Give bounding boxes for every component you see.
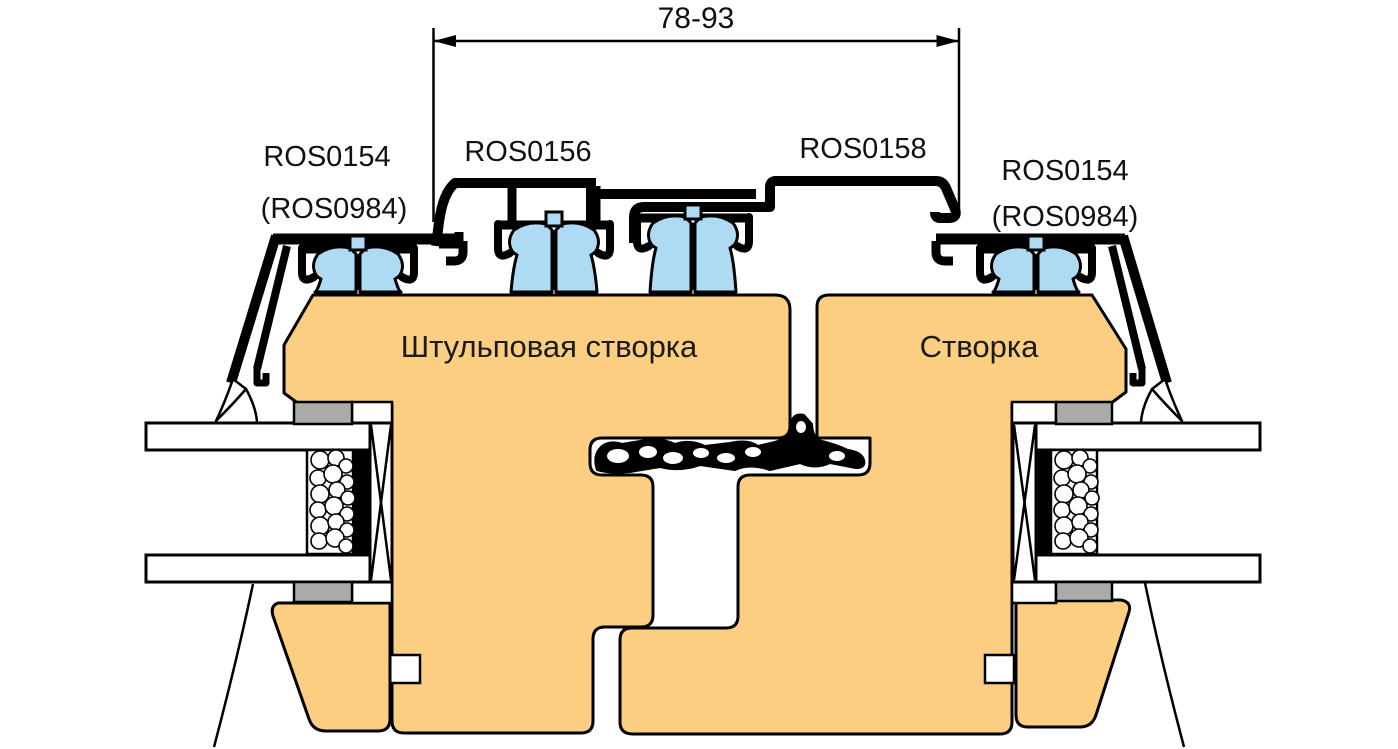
gasket-void xyxy=(829,451,845,461)
gasket-void xyxy=(796,421,806,433)
desiccant-bead xyxy=(311,533,327,549)
label-ros0984-right: (ROS0984) xyxy=(992,201,1139,233)
screw-clip xyxy=(498,186,610,292)
left-glazing-unit xyxy=(146,402,392,603)
desiccant-bead xyxy=(339,539,353,553)
left-rebate-bottom xyxy=(352,582,392,603)
clip-body-right xyxy=(360,247,403,292)
right-rebate-bottom xyxy=(1012,582,1056,603)
screw-clip xyxy=(637,205,749,292)
right-glass-pane-inner xyxy=(1036,555,1260,582)
label-ros0156: ROS0156 xyxy=(464,136,591,168)
right-cap-drip-tail xyxy=(1152,379,1182,421)
left-desiccant-fill xyxy=(310,450,355,553)
gasket-void xyxy=(639,446,657,458)
clip-body-right xyxy=(1038,247,1081,292)
left-glazing-gasket-bottom xyxy=(294,582,352,602)
gasket-void xyxy=(607,449,629,463)
left-rebate-top xyxy=(352,402,392,424)
clip-t-head xyxy=(546,212,562,226)
gasket-void xyxy=(663,452,683,464)
desiccant-bead xyxy=(1055,533,1071,549)
label-ros0154-right: ROS0154 xyxy=(1001,155,1128,187)
left-glazing-bead xyxy=(272,603,390,731)
right-bottom-drip-line xyxy=(1145,583,1184,747)
desiccant-bead xyxy=(1083,539,1097,553)
clip-t-head xyxy=(685,205,701,219)
left-sash-label: Штульповая створка xyxy=(401,329,698,364)
right-rebate-top xyxy=(1012,402,1056,424)
sashes: Штульповая створка Створка xyxy=(284,295,1126,734)
gasket-void xyxy=(745,447,761,457)
clip-body-right xyxy=(556,223,599,292)
desiccant-bead xyxy=(310,502,326,518)
gasket-void xyxy=(717,453,735,463)
right-glazing-gasket-bottom xyxy=(1056,582,1112,601)
window-section-diagram: 78-93 Штульповая створка Створка xyxy=(0,0,1398,749)
left-edge-sealant xyxy=(352,450,371,555)
desiccant-bead xyxy=(324,465,342,483)
desiccant-bead xyxy=(1055,451,1073,469)
clip-body-left xyxy=(510,223,553,292)
label-ros0984-left: (ROS0984) xyxy=(261,193,408,225)
left-glazing-gasket-top xyxy=(294,402,352,424)
desiccant-bead xyxy=(1068,465,1086,483)
right-cap-drip-edge xyxy=(1141,389,1152,422)
right-cap-bottom-hook xyxy=(1133,367,1142,383)
clip-t-head xyxy=(350,236,366,250)
left-glass-pane-outer xyxy=(146,423,370,450)
desiccant-bead xyxy=(311,451,329,469)
gasket-void xyxy=(693,448,709,458)
dimension-value: 78-93 xyxy=(658,2,735,35)
desiccant-bead xyxy=(1054,502,1070,518)
right-sash-groove xyxy=(985,655,1014,683)
section-drawing: 78-93 Штульповая створка Створка xyxy=(0,0,1398,749)
right-desiccant-fill xyxy=(1054,450,1099,553)
clip-body-left xyxy=(314,247,357,292)
right-glazing-gasket-top xyxy=(1056,402,1112,424)
left-glass-pane-inner xyxy=(146,555,370,582)
right-sash-label: Створка xyxy=(920,329,1039,364)
left-cap-bottom-hook xyxy=(257,367,266,383)
left-sash-groove xyxy=(390,655,420,683)
clip-body-right xyxy=(695,216,738,292)
clip-body-left xyxy=(992,247,1035,292)
clip-body-left xyxy=(649,216,692,292)
right-glazing-unit xyxy=(1012,402,1260,603)
label-ros0158: ROS0158 xyxy=(799,133,926,165)
label-ros0154-left: ROS0154 xyxy=(263,141,390,173)
left-cap-drip-tail xyxy=(216,379,246,421)
arrowhead-right-icon xyxy=(937,35,960,47)
left-cap-drip-edge xyxy=(246,389,257,422)
arrowhead-left-icon xyxy=(434,35,457,47)
right-glazing-bead xyxy=(1016,600,1130,727)
clip-t-head xyxy=(1028,236,1044,250)
left-bottom-drip-line xyxy=(214,584,253,747)
right-glass-pane-outer xyxy=(1036,423,1260,450)
